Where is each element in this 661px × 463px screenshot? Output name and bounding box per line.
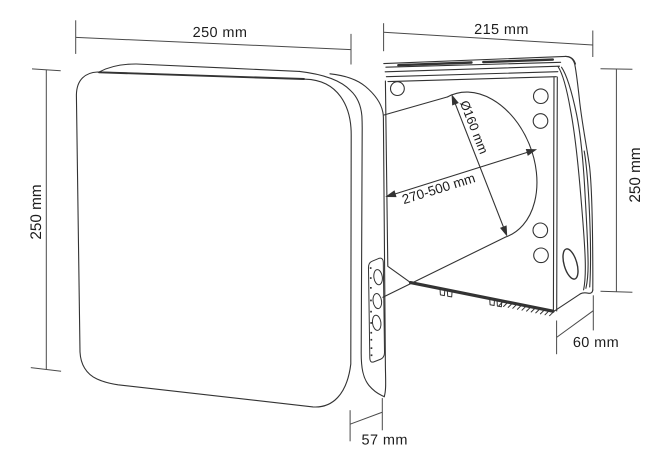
svg-text:215 mm: 215 mm	[474, 22, 529, 38]
svg-text:250 mm: 250 mm	[28, 184, 45, 239]
svg-text:250 mm: 250 mm	[193, 25, 248, 41]
svg-text:60 mm: 60 mm	[573, 335, 619, 351]
svg-text:57 mm: 57 mm	[362, 433, 408, 449]
svg-text:250 mm: 250 mm	[627, 147, 644, 202]
